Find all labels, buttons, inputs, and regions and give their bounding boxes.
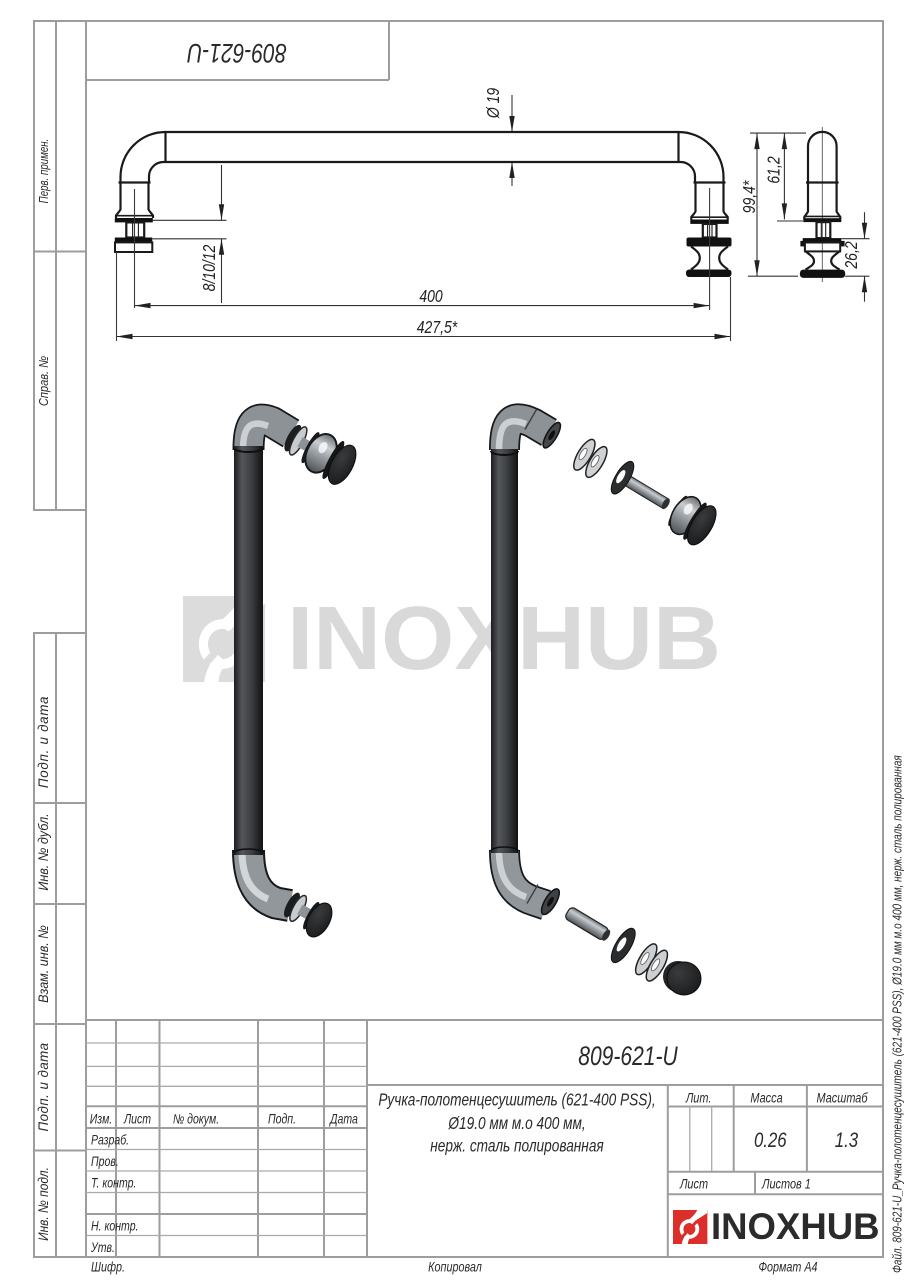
svg-text:Подп. и дата: Подп. и дата [36,1043,51,1132]
svg-text:Листов 1: Листов 1 [761,1176,811,1192]
svg-text:Масштаб: Масштаб [817,1090,869,1106]
svg-text:Изм.: Изм. [90,1111,112,1127]
svg-text:8/10/12: 8/10/12 [201,244,220,291]
svg-text:Дата: Дата [328,1111,358,1127]
svg-text:427,5*: 427,5* [417,319,458,338]
svg-text:Инв. № подл.: Инв. № подл. [35,1167,51,1241]
svg-text:26,2: 26,2 [843,241,862,269]
svg-text:Ø19.0 мм м.о 400 мм,: Ø19.0 мм м.о 400 мм, [448,1114,586,1133]
svg-text:Подп.: Подп. [268,1111,296,1127]
svg-text:Т. контр.: Т. контр. [91,1175,136,1191]
svg-text:Лист: Лист [679,1176,708,1192]
svg-text:809-621-U: 809-621-U [187,37,287,67]
svg-text:Масса: Масса [750,1090,782,1106]
svg-text:Н. контр.: Н. контр. [91,1218,138,1234]
svg-text:1.3: 1.3 [835,1129,859,1152]
svg-text:Инв. № дубл.: Инв. № дубл. [35,813,51,890]
svg-text:Шифр.: Шифр. [91,1259,125,1274]
svg-text:809-621-U: 809-621-U [578,1042,678,1072]
svg-text:Ø 19: Ø 19 [485,88,504,119]
svg-text:Взам. инв. №: Взам. инв. № [35,925,51,1003]
svg-text:Утв.: Утв. [90,1240,115,1256]
svg-text:Формат А4: Формат А4 [758,1259,817,1274]
svg-text:61,2: 61,2 [765,156,784,183]
svg-text:0.26: 0.26 [754,1129,787,1152]
svg-text:Лист: Лист [123,1111,151,1127]
svg-text:нерж. сталь полированная: нерж. сталь полированная [430,1137,604,1156]
svg-text:Разраб.: Разраб. [91,1132,129,1148]
svg-text:Копировал: Копировал [428,1259,482,1274]
svg-text:99,4*: 99,4* [741,180,760,213]
svg-text:400: 400 [419,288,443,307]
svg-text:Файл. 809-621-U_Ручка-полотенц: Файл. 809-621-U_Ручка-полотенцесушитель … [891,755,904,1273]
svg-text:№ докум.: № докум. [173,1111,219,1127]
svg-text:Перв. примен.: Перв. примен. [38,139,51,204]
svg-text:INOXHUB: INOXHUB [711,1205,880,1247]
svg-text:Лит.: Лит. [685,1090,711,1106]
svg-text:Подп. и дата: Подп. и дата [36,696,51,788]
svg-text:Справ. №: Справ. № [36,356,51,406]
svg-text:Ручка-полотенцесушитель (621-4: Ручка-полотенцесушитель (621-400 PSS), [378,1091,655,1110]
svg-text:Пров.: Пров. [91,1154,119,1170]
